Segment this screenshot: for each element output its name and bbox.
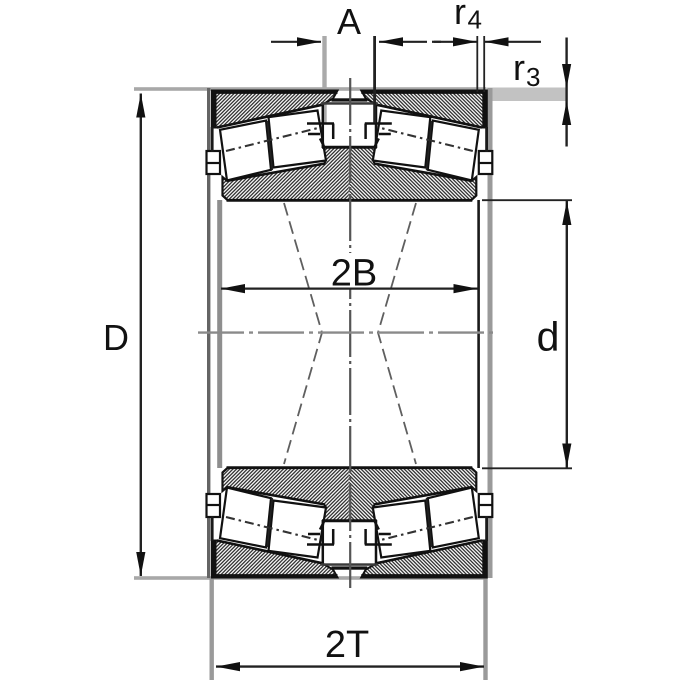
- svg-text:r: r: [513, 47, 525, 88]
- svg-text:D: D: [103, 317, 129, 358]
- svg-text:2T: 2T: [325, 624, 369, 666]
- svg-text:d: d: [537, 314, 560, 360]
- svg-text:4: 4: [468, 5, 482, 35]
- svg-text:2B: 2B: [331, 253, 377, 295]
- svg-text:3: 3: [526, 62, 540, 92]
- svg-text:r: r: [454, 0, 466, 32]
- svg-text:A: A: [337, 1, 361, 42]
